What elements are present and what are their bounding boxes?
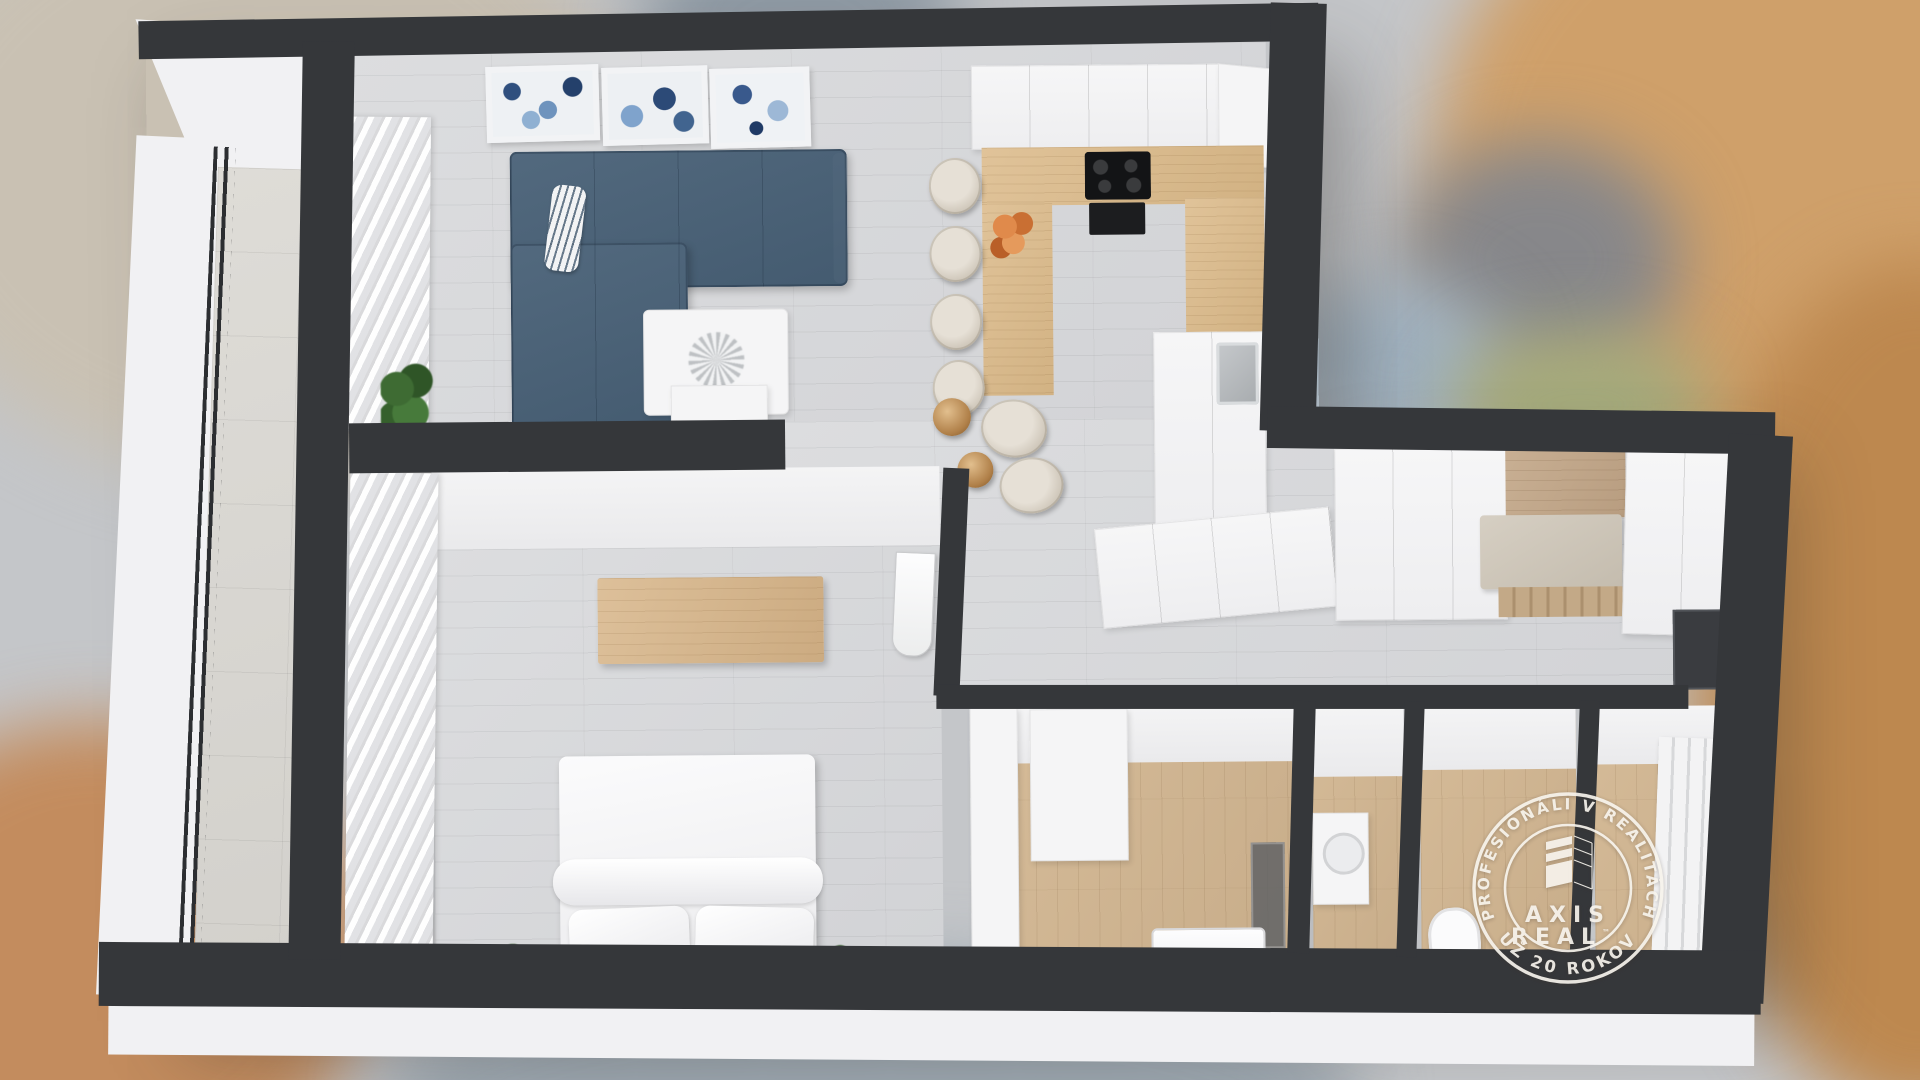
washing-machine-door — [1323, 832, 1365, 874]
axis-real-watermark-stamp: PROFESIONÁLI V REALITÁCH UŽ 20 ROKOV AXI… — [1468, 788, 1668, 988]
sofa-armrest — [833, 153, 849, 283]
floorplan-render-scene: PROFESIONÁLI V REALITÁCH UŽ 20 ROKOV AXI… — [0, 0, 1920, 1080]
wall-kitchen-right — [1260, 2, 1327, 431]
bar-stool-3 — [930, 294, 982, 350]
table-decor-plant — [688, 332, 744, 388]
cooktop — [1085, 151, 1151, 200]
bar-flowers — [985, 205, 1042, 265]
wall-art-1 — [485, 64, 600, 143]
stamp-outer-circle — [1474, 794, 1662, 982]
kitchen-upper-cabinets — [971, 64, 1222, 150]
wall-art-2 — [601, 65, 709, 146]
kitchen-sink — [1216, 342, 1259, 404]
stamp-trademark: ™ — [1602, 928, 1617, 937]
wall-entry-top — [1267, 406, 1775, 454]
kitchen-counter-right — [1185, 197, 1265, 336]
bed-duvet-fold — [553, 857, 823, 905]
stool-gold-base-1 — [933, 398, 971, 436]
bathroom-vanity — [1029, 709, 1128, 862]
wall-art-3 — [709, 66, 811, 149]
stamp-brand-real: REAL™ — [1511, 925, 1617, 950]
laundry-wall-face — [1311, 706, 1404, 777]
wc-wall-face — [1419, 705, 1576, 770]
oven — [1089, 202, 1145, 234]
entry-bench-slats — [1498, 586, 1622, 617]
wall-bedroom-top — [349, 420, 785, 474]
entry-bench-cushion — [1480, 514, 1623, 589]
bedroom-wall-inner-face — [431, 466, 940, 552]
bedroom-curtains — [345, 472, 439, 955]
bar-stool-1 — [929, 158, 981, 214]
bar-stool-2 — [929, 226, 981, 282]
bedroom-door-leaf — [891, 552, 935, 658]
bathroom-tall-cabinet — [969, 708, 1019, 948]
bedroom-sideboard — [597, 576, 824, 664]
stamp-brand-real-text: REAL — [1511, 925, 1602, 950]
axis-real-building-icon — [1546, 836, 1592, 889]
